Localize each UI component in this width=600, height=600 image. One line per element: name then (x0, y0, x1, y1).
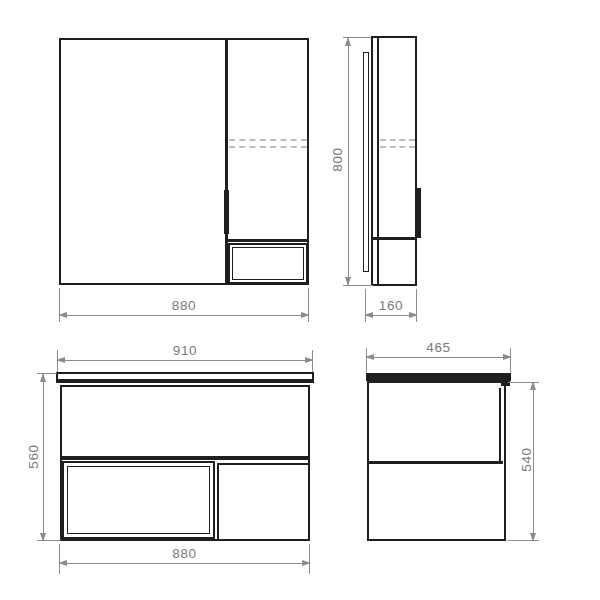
countertop-front (56, 372, 314, 383)
upper-drawer-divider (61, 456, 309, 460)
glass-shelf-hidden-line-2 (380, 146, 415, 148)
dim-label-vanity-top-width: 910 (57, 343, 313, 358)
shelf-divider-side (372, 237, 416, 240)
arrow-down-icon (345, 277, 351, 286)
dim-label-vanity-side-height: 540 (519, 440, 534, 480)
dimension-line (365, 315, 417, 316)
dim-label-mirror-height: 800 (330, 140, 345, 180)
mirror-panel (363, 52, 369, 272)
door-handle (224, 190, 229, 234)
lower-right-door (217, 463, 310, 541)
dimension-line (59, 315, 309, 316)
arrow-down-icon (530, 533, 536, 542)
dimension-line (348, 38, 349, 285)
countertop-side-profile (366, 373, 511, 381)
dimension-line (366, 357, 511, 358)
glass-shelf-hidden-line-1 (380, 139, 415, 141)
technical-drawing-canvas: 880 800 160 (0, 0, 600, 600)
arrow-up-icon (345, 37, 351, 46)
dimension-line (43, 374, 44, 541)
arrow-down-icon (40, 533, 46, 542)
dim-label-mirror-depth: 160 (355, 298, 427, 313)
cabinet-front-panel-line (377, 38, 379, 284)
dim-label-vanity-depth: 465 (366, 340, 511, 355)
open-shelf-inner (232, 247, 304, 280)
drawer-front-edge-line (499, 388, 501, 462)
glass-shelf-hidden-line-2 (229, 146, 307, 148)
drawer-divider-side (368, 461, 503, 464)
arrow-up-icon (530, 381, 536, 390)
dimension-line (59, 563, 310, 564)
arrow-up-icon (40, 373, 46, 382)
dim-label-vanity-height: 560 (26, 437, 41, 477)
dim-label-mirror-width: 880 (59, 298, 309, 313)
glass-shelf-hidden-line-1 (229, 139, 307, 141)
lower-drawer-inner (67, 466, 210, 534)
door-handle-side (416, 188, 421, 238)
dimension-line (57, 360, 313, 361)
door-bottom-edge (225, 239, 309, 242)
dim-label-vanity-bottom-width: 880 (59, 546, 310, 561)
